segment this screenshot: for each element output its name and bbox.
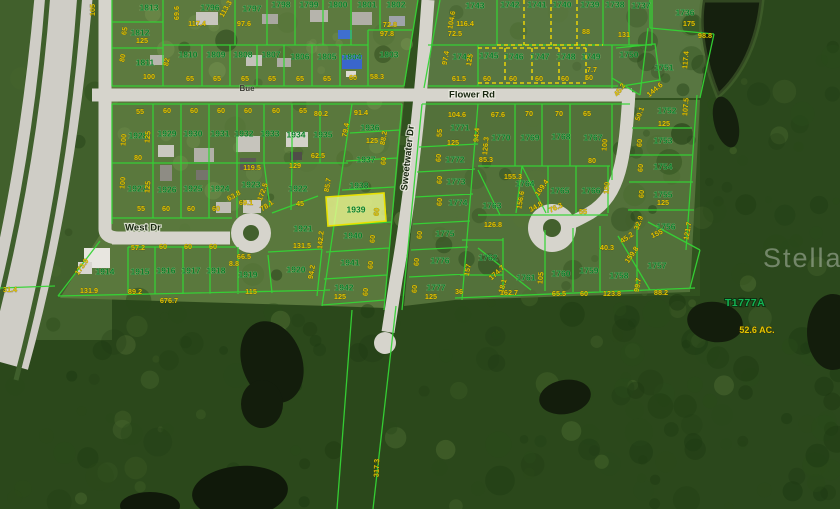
tree-texture [419,386,430,397]
lot-number-label: 1798 [272,0,291,9]
tree-texture [806,444,830,468]
dimension-label: 676.7 [160,296,178,305]
dimension-label: 80.2 [314,109,328,118]
tree-texture [271,269,282,280]
dimension-label: 72.5 [448,29,462,38]
dimension-label: 65 [323,74,331,83]
lot-number-label: 1813 [140,2,159,12]
lot-number-label: 1753 [654,135,673,145]
lot-number-label: 1922 [289,183,308,193]
lot-number-label: 1797 [243,3,262,13]
dimension-label: 80 [134,153,142,162]
dimension-label: 60 [434,154,444,163]
dimension-label: 69.1 [239,198,253,207]
tree-texture [455,306,471,322]
dimension-label: 125 [658,119,670,128]
dimension-label: 60 [361,288,371,297]
lot-number-label: 1917 [182,265,201,275]
parcel-map-canvas: 1813179617971798179918001801180218121811… [0,0,840,509]
lot-number-label: 1752 [658,105,677,115]
lot-number-label: 1757 [648,260,667,270]
tree-texture [591,255,598,262]
lot-number-label: 1916 [157,265,176,275]
tree-texture [714,375,734,395]
tree-texture [299,458,310,469]
dimension-label: 60 [372,208,382,217]
tree-texture [141,371,159,389]
lot-number-label: 1919 [239,269,258,279]
dimension-label: 72.8 [383,20,397,29]
dimension-label: 60 [184,242,192,251]
dimension-label: 60 [209,242,217,251]
lot-number-label: 1796 [201,2,220,12]
lot-number-label: 1762 [479,252,498,262]
dimension-label: 123.8 [603,289,621,298]
lot-number-label: 1918 [207,265,226,275]
tree-texture [741,78,748,85]
tree-texture [143,428,172,457]
lot-number-label: 1773 [447,176,466,186]
tree-texture [687,377,703,393]
tree-texture [729,147,737,155]
tree-texture [833,198,840,205]
lot-number-label: 1938 [350,180,369,190]
dimension-label: 125 [136,36,148,45]
dimension-label: 126.3 [480,136,491,155]
tree-texture [781,413,792,424]
tree-texture [385,422,398,435]
dimension-label: 65 [186,74,194,83]
tree-texture [7,490,22,505]
lot-number-label: 1806 [291,51,310,61]
lot-number-label: 1742 [501,0,520,9]
dimension-label: 60 [483,74,491,83]
lot-number-label: 1930 [184,128,203,138]
tree-texture [793,142,803,152]
lot-number-label: 1769 [521,132,540,142]
tree-texture [471,482,485,496]
dimension-label: 60 [349,73,357,82]
tree-texture [757,483,772,498]
dimension-label: 50 [585,73,593,82]
lot-number-label: 1750 [620,49,639,59]
dimension-label: 125 [366,136,378,145]
tree-texture [485,431,511,457]
tree-texture [703,394,718,409]
dimension-label: 60 [410,285,420,294]
dimension-label: 94.4 [471,127,481,143]
lot-number-label: 1772 [446,154,465,164]
dimension-label: 104.6 [448,110,466,119]
dimension-label: 85.3 [479,155,493,164]
tree-texture [737,155,747,165]
tree-texture [703,200,726,223]
tree-texture [46,317,60,331]
dimension-label: 55 [137,204,145,213]
lot-number-label: 1741 [528,0,547,9]
tree-texture [77,406,87,416]
dimension-label: 60 [368,235,378,244]
tree-texture [65,228,73,236]
lot-number-label: 1749 [582,51,601,61]
lot-number-label: 1802 [387,0,406,9]
tree-texture [89,374,100,385]
dimension-label: 55 [579,207,587,216]
tree-texture [825,86,840,101]
acreage-annotation: 52.6 AC. [739,325,774,335]
dimension-label: 97.8 [380,29,394,38]
dimension-label: 65 [241,74,249,83]
tree-texture [487,299,495,307]
tree-texture [643,130,650,137]
tree-texture [685,439,706,460]
tree-texture [590,335,603,348]
dimension-label: 125 [142,180,152,193]
lot-number-label: 1921 [294,223,313,233]
dimension-label: 105 [535,271,545,284]
west-dr-island [243,225,259,241]
dimension-label: 60 [272,106,280,115]
dimension-label: 80 [117,53,127,63]
tree-texture [440,349,453,362]
lot-number-label: 1759 [580,265,599,275]
dimension-label: 126.8 [484,220,502,229]
dimension-label: 125 [142,130,152,143]
tree-texture [626,401,644,419]
lot-number-label: 1738 [606,0,625,9]
dimension-label: 70 [525,109,533,118]
dimension-label: 131.5 [293,241,311,250]
lot-number-label: 1800 [329,0,348,9]
dimension-label: 60 [636,164,646,173]
dimension-label: 65 [268,74,276,83]
tree-texture [485,466,515,496]
tree-texture [669,294,686,311]
lot-number-label: 1941 [341,257,360,267]
dimension-label: 67.6 [491,110,505,119]
tree-texture [196,409,206,419]
lot-number-label: 1736 [676,7,695,17]
tree-texture [488,354,505,371]
lot-number-label: 1914 [96,266,115,276]
lot-number-label: 1925 [184,183,203,193]
tree-texture [290,445,300,455]
lot-number-label: 1808 [234,49,253,59]
lot-number-label: 1758 [610,270,629,280]
tree-texture [93,341,112,360]
tree-texture [485,326,505,346]
lot-number-label: 1940 [344,230,363,240]
dimension-label: 60 [435,176,445,185]
lot-number-label: 1937 [357,154,376,164]
dimension-label: 131.9 [80,286,98,295]
tree-texture [291,314,304,327]
dimension-label: 125 [447,138,459,147]
tree-texture [627,382,644,399]
dimension-label: 116.4 [456,19,475,28]
lot-number-label: 1745 [480,50,499,60]
tract-annotation: T1777A [725,297,765,309]
dimension-label: 125 [425,292,437,301]
tree-texture [613,303,626,316]
tree-texture [722,182,733,193]
lot-number-label: 1936 [361,122,380,132]
dimension-label: 60 [635,139,645,148]
tree-texture [513,212,528,227]
dimension-label: 98.8 [698,31,712,40]
lot-number-label: 1777 [427,282,446,292]
dimension-label: 8.8 [229,259,239,268]
tree-texture [810,196,828,214]
tree-texture [299,496,310,507]
dimension-label: 65 [119,26,129,36]
tree-texture [637,53,656,72]
tree-texture [535,435,547,447]
lot-number-label: 1939 [347,204,366,214]
tree-texture [738,385,752,399]
dimension-label: 100 [599,138,609,151]
lot-number-label: 1805 [318,51,337,61]
tree-texture [765,196,772,203]
lot-number-label: 1915 [131,266,150,276]
lot-number-label: 1942 [335,282,354,292]
tree-texture [168,305,186,323]
dimension-label: 70 [555,109,563,118]
dimension-label: 60 [366,261,376,270]
dimension-label: 60 [509,74,517,83]
tree-texture [432,460,447,475]
lot-number-label: 1811 [136,57,155,67]
dimension-label: 317.3 [372,459,382,478]
lot-number-label: 1737 [632,0,651,10]
tree-texture [436,237,453,254]
lot-number-label: 1920 [287,264,306,274]
tree-texture [688,299,696,307]
lot-number-label: 1934 [287,129,306,139]
tree-texture [660,73,670,83]
tree-texture [106,414,115,423]
tree-texture [655,451,676,472]
tree-texture [219,346,228,355]
dimension-label: 89.2 [128,287,142,296]
tree-texture [152,355,159,362]
dimension-label: 91.4 [354,108,369,117]
tree-texture [783,481,803,501]
tree-texture [310,335,322,347]
tree-texture [671,123,693,145]
tree-texture [733,356,759,382]
tree-texture [39,428,54,443]
tree-texture [524,451,536,463]
dimension-label: 60 [637,190,647,199]
dimension-label: 125 [657,198,669,207]
dimension-label: 60 [187,204,195,213]
dimension-label: 65.5 [552,289,566,298]
dimension-label: 55 [136,107,144,116]
lot-number-label: 1935 [314,129,333,139]
lot-number-label: 1810 [179,49,198,59]
dimension-label: 129 [289,161,301,170]
lot-number-label: 1747 [531,51,550,61]
lot-number-label: 1926 [158,184,177,194]
dimension-label: 100 [601,181,611,194]
tree-texture [325,441,343,459]
dimension-label: 57.2 [131,243,145,252]
lot-number-label: 1771 [451,122,470,132]
dimension-label: 82 [161,57,171,67]
street-name-label: Bue [239,84,255,93]
tree-texture [707,346,729,368]
lot-number-label: 1775 [436,228,455,238]
tree-texture [711,404,732,425]
dimension-label: 131 [618,30,630,39]
tree-texture [735,194,756,215]
tree-texture [124,457,147,480]
dimension-label: 61.5 [452,74,466,83]
street-name-label: Flower Rd [449,90,495,101]
tree-texture [809,226,822,239]
lot-number-label: 1739 [581,0,600,9]
tree-texture [620,342,644,366]
dimension-label: 60 [412,258,422,267]
tree-texture [790,102,814,126]
lot-number-label: 1932 [235,128,254,138]
tree-texture [75,492,87,504]
lot-number-label: 1746 [505,51,524,61]
dimension-label: 40.3 [600,243,614,252]
lot-number-label: 1766 [582,185,601,195]
dimension-label: 155.3 [504,172,522,181]
tree-texture [86,462,114,490]
dimension-label: 175 [683,19,695,28]
dimension-label: 105 [88,4,97,16]
dimension-label: 65 [299,106,307,115]
lot-number-label: 1804 [343,51,362,61]
tree-texture [135,481,146,492]
lot-number-label: 1933 [261,128,280,138]
dimension-label: 97.6 [237,19,251,28]
tree-texture [464,167,486,189]
dimension-label: 88 [582,27,590,36]
tree-texture [53,442,75,464]
tree-texture [674,395,697,418]
lot-number-label: 1743 [466,0,485,10]
tree-texture [637,474,646,483]
dimension-label: 36 [455,287,463,296]
dimension-label: 60 [415,231,425,240]
lot-number-label: 1760 [552,268,571,278]
tree-texture [774,205,795,226]
dimension-label: 60 [580,289,588,298]
tree-texture [772,80,796,104]
tree-texture [303,322,317,336]
dimension-label: 31.4 [3,285,18,294]
tree-texture [361,304,375,318]
dimension-label: 7.7 [587,65,597,74]
dimension-label: 60 [212,204,220,213]
stellar-mls-watermark: Stellar MLS [763,243,840,273]
tree-texture [386,217,395,226]
tree-texture [747,82,770,105]
lot-number-label: 1931 [211,128,230,138]
dimension-label: 65 [213,74,221,83]
tree-texture [560,302,585,327]
lot-number-label: 1751 [655,62,674,72]
lot-number-label: 1774 [449,197,468,207]
dimension-label: 115 [245,287,257,296]
tree-texture [121,423,143,445]
dimension-label: 60 [435,198,445,207]
tree-texture [625,418,653,446]
tree-texture [520,435,529,444]
tree-texture [705,178,713,186]
lot-number-label: 1923 [242,179,261,189]
tree-texture [450,382,468,400]
tree-texture [572,62,581,71]
dimension-label: 69.6 [172,6,181,20]
lot-number-label: 1801 [358,0,377,9]
dimension-label: 125 [334,292,346,301]
dimension-label: 100 [143,72,155,81]
tree-texture [521,289,538,306]
aerial-parcel-map: 1813179617971798179918001801180218121811… [0,0,840,509]
dimension-label: 60 [162,204,170,213]
tree-texture [807,474,825,492]
tree-texture [181,332,204,355]
dimension-label: 60 [561,74,569,83]
tree-texture [633,480,653,500]
tree-texture [664,422,679,437]
tree-texture [720,438,732,450]
dimension-label: 119.5 [243,163,261,172]
dimension-label: 60 [535,74,543,83]
lot-number-label: 1809 [207,49,226,59]
lot-number-label: 1799 [300,0,319,9]
tree-texture [578,438,600,460]
dimension-label: 60 [244,106,252,115]
dimension-label: 45 [296,199,304,208]
lot-number-label: 1754 [654,161,673,171]
lot-number-label: 1740 [553,0,572,9]
tree-texture [159,350,179,370]
tree-texture [768,133,785,150]
tree-texture [436,440,456,460]
dimension-label: 62.5 [311,151,325,160]
tree-texture [677,83,690,96]
tree-texture [782,339,798,355]
tree-texture [643,299,672,328]
lot-number-label: 1768 [552,131,571,141]
dimension-label: 65 [583,109,591,118]
lot-number-label: 1761 [517,272,536,282]
lot-number-label: 1770 [492,132,511,142]
lot-number-label: 1929 [158,128,177,138]
lot-number-label: 1765 [551,185,570,195]
dimension-label: 107.5 [680,97,691,116]
tree-texture [650,475,660,485]
dimension-label: 117.4 [680,50,691,70]
dimension-label: 60 [159,242,167,251]
dimension-label: 55 [435,129,445,138]
tree-texture [737,436,748,447]
lot-number-label: 1763 [483,200,502,210]
tree-texture [126,316,147,337]
dimension-label: 60 [217,106,225,115]
tree-texture [524,468,535,479]
tree-texture [561,421,581,441]
tree-texture [649,498,660,509]
lot-number-label: 1748 [557,51,576,61]
